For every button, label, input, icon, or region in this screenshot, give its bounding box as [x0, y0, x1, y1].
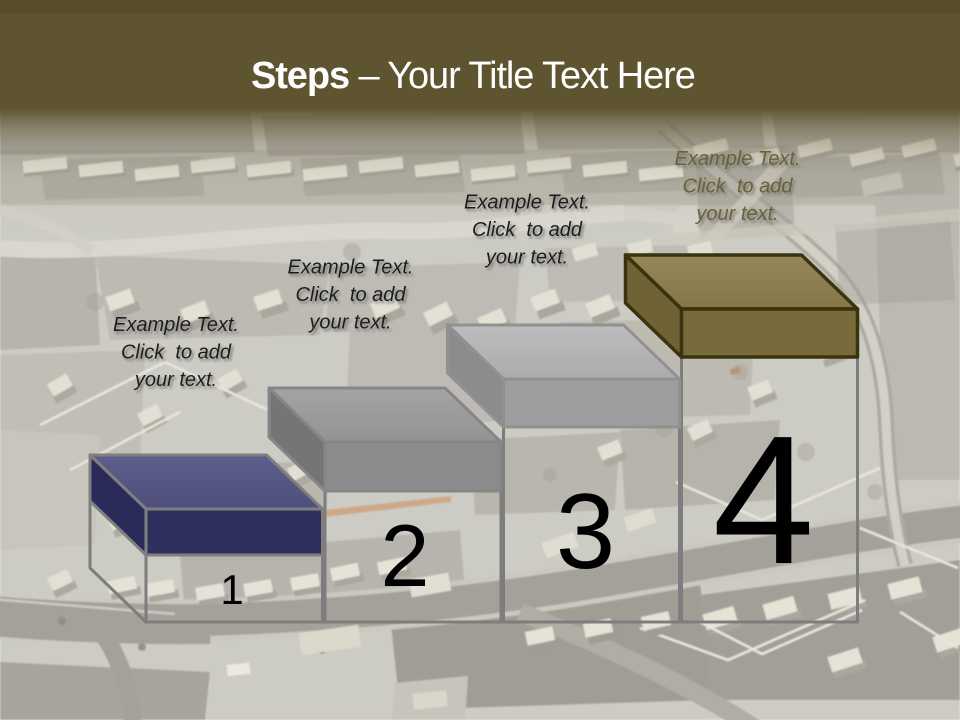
svg-text:Steps – Your Title Text Here: Steps – Your Title Text Here: [251, 55, 695, 97]
svg-text:2: 2: [381, 506, 430, 605]
svg-text:1: 1: [220, 566, 243, 613]
svg-text:4: 4: [713, 397, 815, 602]
svg-text:3: 3: [556, 471, 616, 591]
